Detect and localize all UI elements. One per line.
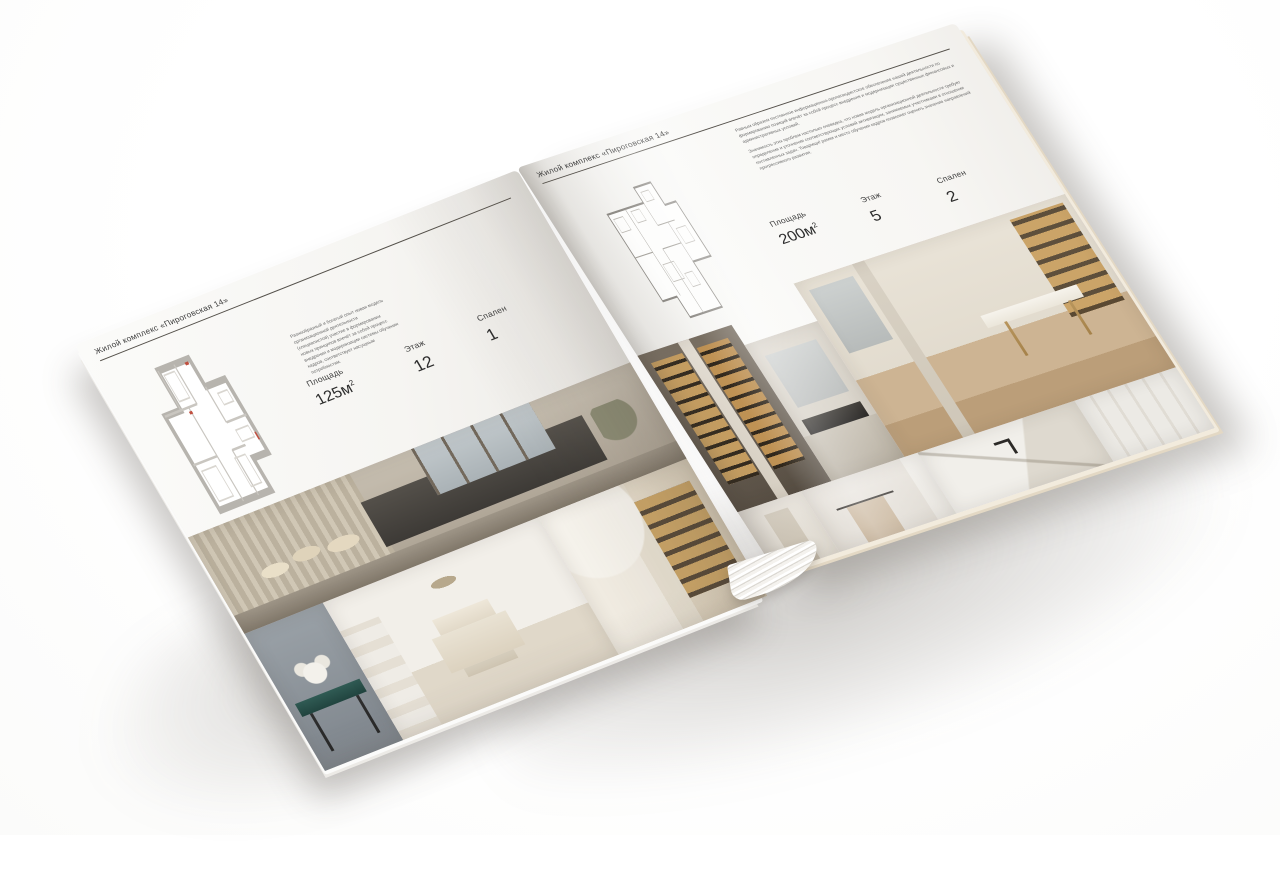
stat-area-right: Площадь 200м2	[768, 208, 824, 249]
stat-floor-right-label: Этаж	[858, 190, 882, 204]
stat-floor-right-value: 5	[867, 203, 897, 226]
stat-bedrooms-right: Спален 2	[934, 168, 981, 207]
left-paragraph: Разнообразный и богатый опыт новая модел…	[289, 297, 408, 376]
stat-bedrooms-left-value: 1	[483, 317, 522, 345]
brochure-mockup-scene: Жилой комплекс «Пироговская 14» Равным о…	[0, 0, 1280, 835]
stat-bedrooms-right-value: 2	[943, 181, 982, 207]
stat-floor-left: Этаж 12	[402, 338, 439, 376]
stat-floor-right: Этаж 5	[858, 190, 896, 226]
right-floor-plan	[588, 168, 750, 332]
left-body-text: Разнообразный и богатый опыт новая модел…	[289, 297, 410, 381]
left-floor-plan	[131, 340, 295, 520]
stat-bedrooms-left: Спален 1	[475, 303, 522, 345]
stat-floor-left-value: 12	[410, 351, 439, 376]
